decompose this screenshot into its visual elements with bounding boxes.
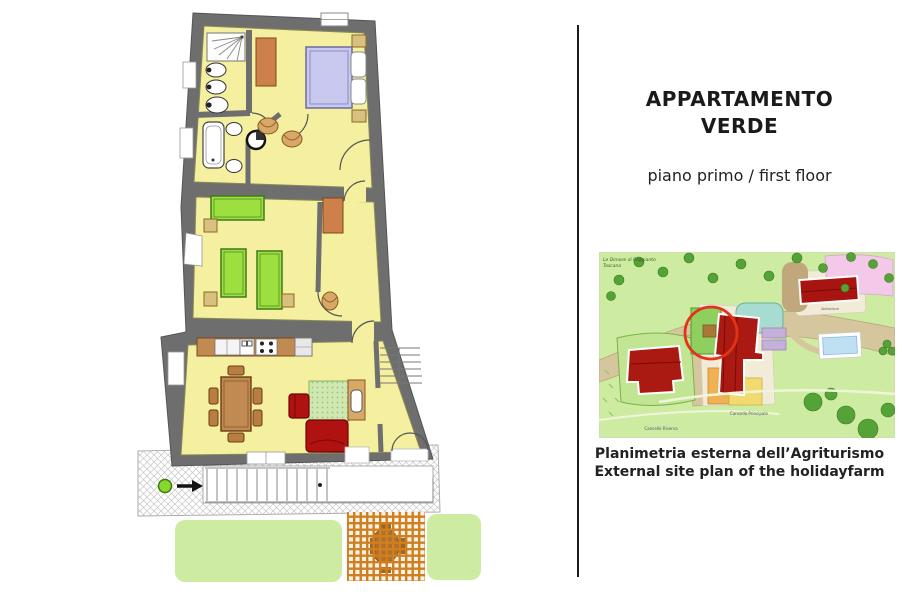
armchair xyxy=(258,118,278,134)
map-caption: Planimetria esterna dell’Agriturismo Ext… xyxy=(579,446,900,481)
map-apartment-marker xyxy=(703,325,716,337)
nightstand xyxy=(282,294,294,307)
floor-plan xyxy=(0,0,580,600)
double-bed xyxy=(306,47,352,108)
site-plan-map: Le Dimore di Poggianto Toscana Abitazion… xyxy=(599,252,895,438)
map-pool xyxy=(818,332,861,359)
nightstand xyxy=(204,219,217,232)
map-estate-label-line1: Le Dimore di Poggianto xyxy=(603,257,656,263)
sink-icon xyxy=(226,123,242,136)
apartment-title-line1: APPARTAMENTO xyxy=(579,86,900,113)
cabinet xyxy=(215,339,240,355)
french-door xyxy=(391,449,428,461)
single-bed xyxy=(221,249,246,297)
lawn-left xyxy=(175,520,342,582)
armchair-red xyxy=(289,394,309,418)
apartment-title-line2: VERDE xyxy=(579,113,900,140)
map-caption-line1: Planimetria esterna dell’Agriturismo xyxy=(579,446,900,464)
lawn-right xyxy=(427,514,481,580)
map-estate-label-line2: Toscana xyxy=(603,263,621,269)
single-bed xyxy=(257,251,282,309)
nightstand xyxy=(204,292,217,306)
terrace-door-opening xyxy=(345,447,369,463)
apartment-title: APPARTAMENTO VERDE xyxy=(579,86,900,140)
stove xyxy=(256,339,277,355)
nightstand xyxy=(352,110,366,122)
armchair xyxy=(322,292,338,310)
info-panel: APPARTAMENTO VERDE piano primo / first f… xyxy=(579,0,900,600)
sofa-red xyxy=(306,420,348,452)
door-opening-corridor-top xyxy=(344,183,366,202)
wardrobe xyxy=(323,198,343,233)
toilet-icon xyxy=(226,160,242,173)
wardrobe xyxy=(256,38,276,86)
map-road-label-secondary: Cancello Riserva xyxy=(644,426,678,431)
pillow xyxy=(351,79,366,104)
single-bed xyxy=(211,196,264,220)
nightstand xyxy=(352,35,366,47)
pillow xyxy=(351,52,366,77)
map-caption-line2: External site plan of the holidayfarm xyxy=(579,464,900,482)
map-lavender-area xyxy=(762,340,786,350)
map-road-label-main: Cancello Principale xyxy=(730,411,768,416)
armchair xyxy=(282,131,302,147)
page-canvas: APPARTAMENTO VERDE piano primo / first f… xyxy=(0,0,900,600)
floor-subtitle: piano primo / first floor xyxy=(579,166,900,185)
pergola xyxy=(347,512,425,581)
map-lavender-area xyxy=(762,328,786,338)
dining-table xyxy=(221,377,251,431)
map-building-label: Abitazione xyxy=(821,307,839,311)
